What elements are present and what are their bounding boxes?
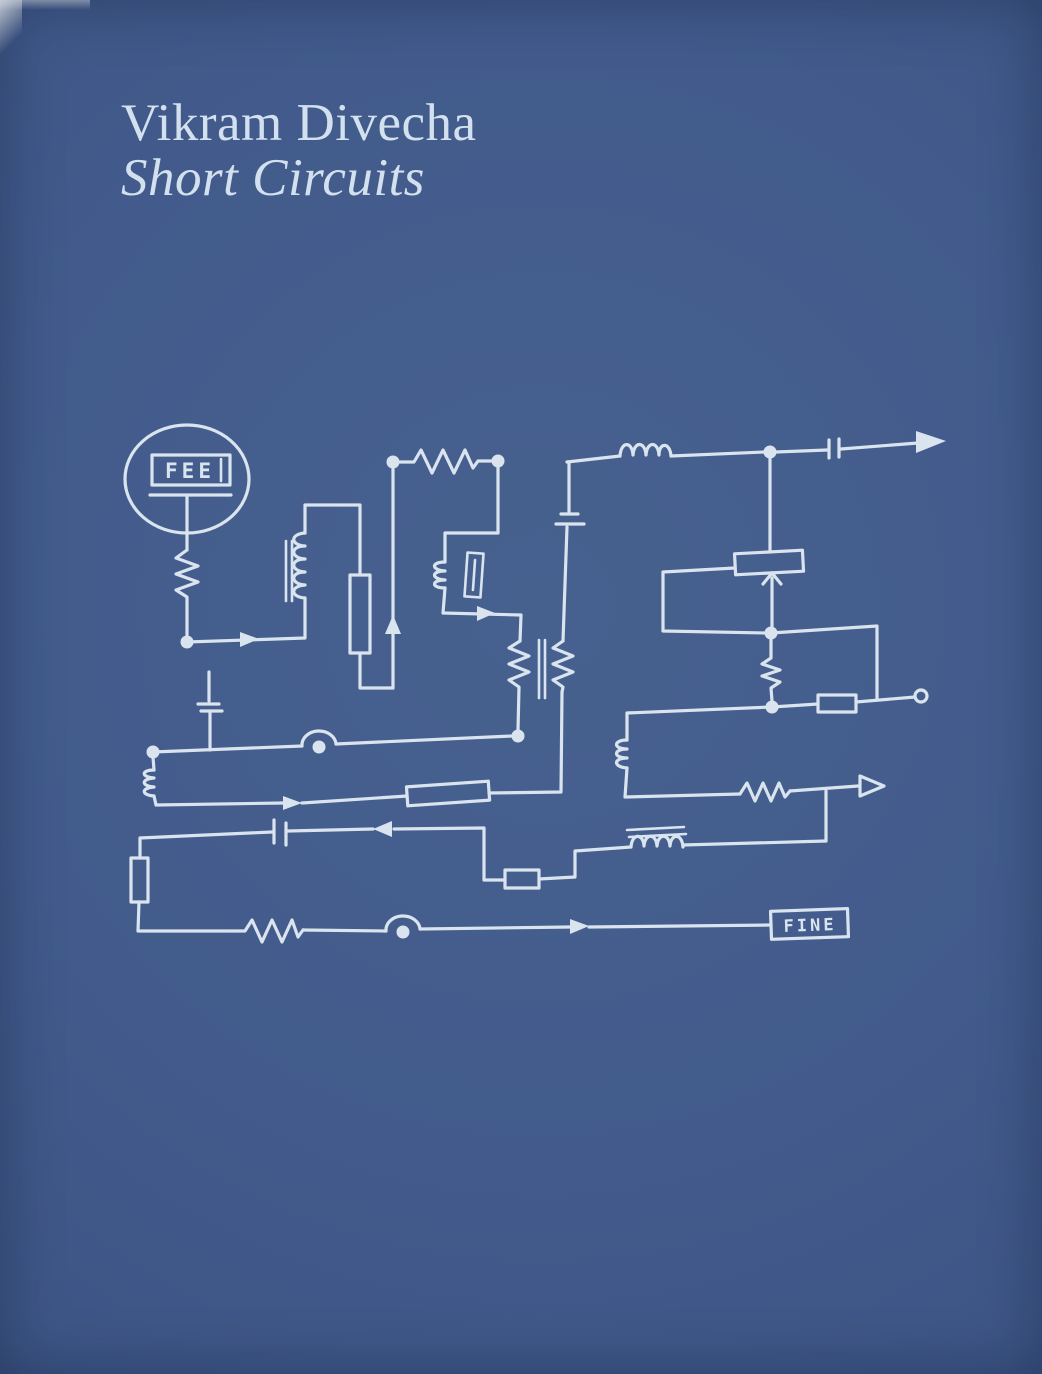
lower-left-loop <box>131 820 505 902</box>
wire <box>625 768 740 797</box>
capacitor-plates <box>556 514 584 524</box>
wire <box>394 828 505 880</box>
wire <box>841 443 918 449</box>
wire <box>671 452 764 456</box>
inductor-coil <box>435 562 446 588</box>
circuit-diagram: FEE <box>0 0 1042 1374</box>
wire <box>790 786 858 791</box>
transformer-core-bars <box>539 640 545 698</box>
wire <box>305 505 360 575</box>
top-right-rail <box>567 431 946 462</box>
fine-label: FINE <box>783 915 837 937</box>
box-resistor <box>350 575 370 653</box>
inductor-coil <box>294 533 305 598</box>
floating-component-box <box>464 552 483 597</box>
wire <box>663 568 765 633</box>
wire <box>303 930 386 931</box>
transformer-core-bars <box>286 541 292 601</box>
wire <box>563 527 567 641</box>
arrow-up-icon <box>385 615 401 634</box>
middle-rail <box>144 672 512 810</box>
horizontal-box-resistor <box>406 781 489 806</box>
wire <box>360 653 393 688</box>
junction-dot <box>387 456 400 469</box>
wire <box>776 450 827 452</box>
wire <box>138 902 230 931</box>
arrow-left-icon <box>373 821 392 837</box>
bottom-inductor <box>505 827 826 888</box>
transformer-left <box>286 469 401 688</box>
arrow-right-icon <box>477 606 495 621</box>
inductor-coil <box>144 770 154 796</box>
box-resistor <box>505 870 539 888</box>
wire <box>420 927 570 929</box>
arrow-right-icon <box>283 796 302 810</box>
wire <box>153 746 302 752</box>
wire <box>153 757 154 770</box>
open-arrow-right-icon <box>860 776 884 796</box>
box-resistor <box>406 781 489 806</box>
small-box-inner-line <box>473 560 475 590</box>
hop-dot <box>313 741 326 754</box>
wire <box>140 832 272 858</box>
wire <box>288 829 373 831</box>
inductor-coil <box>617 740 628 768</box>
fee-label: FEE <box>165 459 215 483</box>
wire <box>771 626 877 699</box>
zigzag-resistor <box>509 641 529 730</box>
zigzag-resistor <box>230 920 303 942</box>
wire <box>567 456 620 462</box>
wire <box>627 707 772 740</box>
transformer-center <box>489 640 573 793</box>
wire <box>445 461 498 562</box>
wire <box>336 736 512 744</box>
arrow-right-icon <box>240 632 259 647</box>
inductor-coil <box>620 445 671 457</box>
capacitor-plates <box>274 820 286 845</box>
series-capacitor <box>556 462 584 641</box>
box-resistor <box>131 858 148 902</box>
wire <box>856 697 915 702</box>
potentiometer-block <box>663 452 927 714</box>
fine-terminal: FINE <box>771 909 849 940</box>
book-cover: Vikram Divecha Short Circuits FEE <box>0 0 1042 1374</box>
arrow-right-icon <box>916 431 946 453</box>
zigzag-resistor <box>400 450 492 473</box>
capacitor-plates <box>829 439 839 458</box>
right-lower-branch <box>617 707 885 841</box>
zigzag-resistor <box>176 550 198 636</box>
hop-dot <box>397 926 410 939</box>
wire <box>154 796 283 805</box>
wire <box>683 841 826 845</box>
arrow-right-icon <box>570 919 589 934</box>
open-terminal-icon <box>915 690 927 702</box>
wire <box>539 847 631 879</box>
capacitor-plates <box>198 704 222 711</box>
zigzag-resistor <box>553 641 573 692</box>
wire <box>772 704 818 707</box>
top-resistor <box>387 450 522 641</box>
zigzag-resistor <box>762 639 780 701</box>
inductor-coil <box>631 836 683 847</box>
wire <box>489 692 562 793</box>
potentiometer <box>735 550 804 575</box>
wire <box>589 925 771 927</box>
wire <box>302 796 407 803</box>
box-resistor <box>818 695 856 712</box>
potentiometer-body <box>735 550 804 575</box>
bottom-rail: FINE <box>138 902 848 942</box>
zigzag-resistor <box>740 783 790 801</box>
